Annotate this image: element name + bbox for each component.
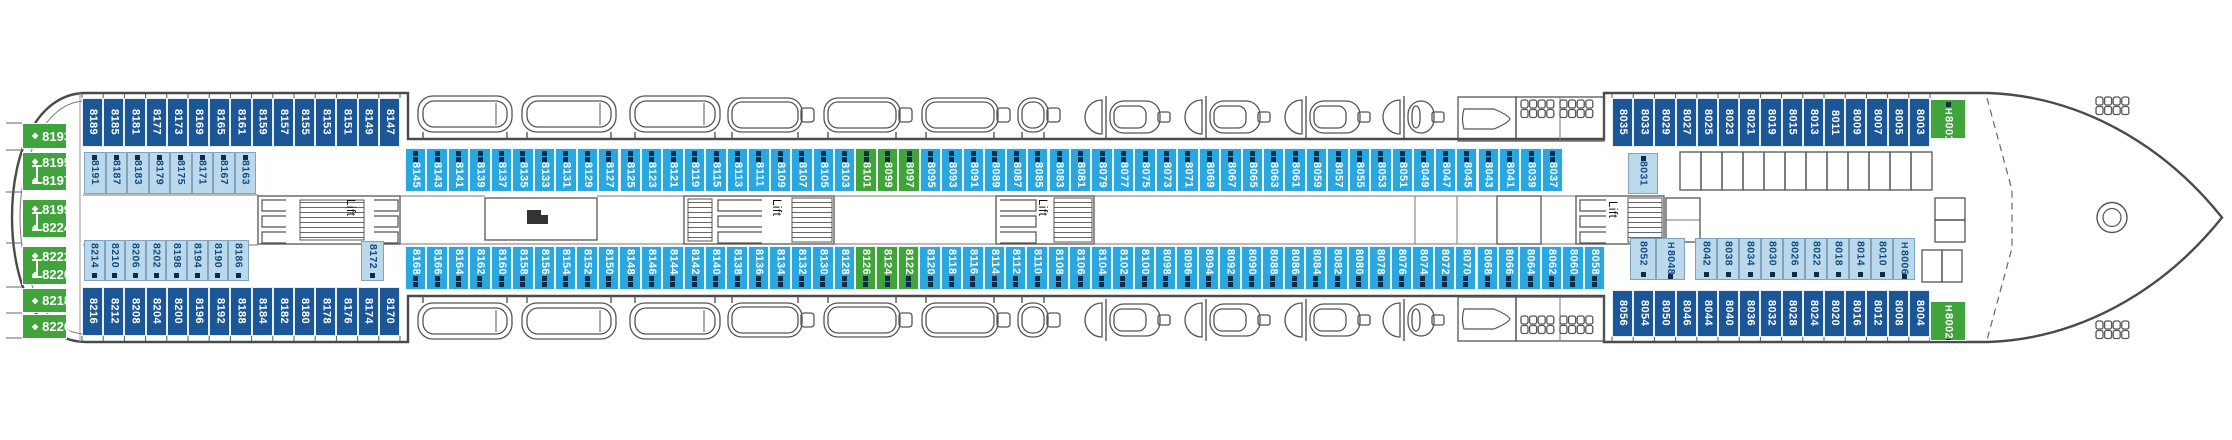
cabin-8004[interactable]: 8004 xyxy=(1909,290,1930,337)
cabin-number: 8002 xyxy=(1943,313,1954,339)
obstructed-view-marker xyxy=(1770,272,1775,277)
cabin-8149[interactable]: 8149 xyxy=(358,98,379,147)
cabin-8187[interactable]: 8187 xyxy=(106,152,128,194)
cabin-8018[interactable]: 8018 xyxy=(1827,238,1849,280)
cabin-8075[interactable]: 8075 xyxy=(1134,148,1155,192)
cabin-8063[interactable]: 8063 xyxy=(1263,148,1284,192)
cabin-8124[interactable]: 8124 xyxy=(876,246,897,290)
cabin-number: 8080 xyxy=(1353,249,1364,275)
cabin-8015[interactable]: 8015 xyxy=(1782,98,1803,147)
cabin-number: 8009 xyxy=(1850,109,1861,135)
obstructed-view-marker xyxy=(692,151,697,162)
cabin-8193[interactable]: ◆8193 xyxy=(23,130,66,143)
cabin-number: 8011 xyxy=(1829,110,1840,135)
cabin-number: 8127 xyxy=(603,162,614,188)
cabin-8190[interactable]: 8190 xyxy=(208,240,229,281)
suite-block[interactable]: ◆8222◆8220 xyxy=(22,246,67,285)
cabin-number: 8046 xyxy=(1681,300,1692,326)
cabin-8164[interactable]: 8164 xyxy=(448,246,469,290)
cabin-8145[interactable]: 8145 xyxy=(405,148,426,192)
cabin-8094[interactable]: 8094 xyxy=(1198,246,1219,290)
cabin-8108[interactable]: 8108 xyxy=(1048,246,1069,290)
cabin-8051[interactable]: 8051 xyxy=(1392,148,1413,192)
cabin-8049[interactable]: 8049 xyxy=(1413,148,1434,192)
cabin-8180[interactable]: 8180 xyxy=(294,287,315,336)
cabin-8152[interactable]: 8152 xyxy=(576,246,597,290)
cabin-8101[interactable]: 8101 xyxy=(855,148,876,192)
cabin-number: 8063 xyxy=(1268,162,1279,188)
cabin-8188[interactable]: 8188 xyxy=(230,287,251,336)
cabin-8091[interactable]: 8091 xyxy=(963,148,984,192)
cabin-8082[interactable]: 8082 xyxy=(1326,246,1347,290)
cabin-8148[interactable]: 8148 xyxy=(619,246,640,290)
suite-block[interactable]: ◆8199◆8224 xyxy=(22,199,67,238)
cabin-8038[interactable]: 8038 xyxy=(1717,238,1739,280)
cabin-number: 8116 xyxy=(967,249,978,274)
cabin-8023[interactable]: 8023 xyxy=(1718,98,1739,147)
cabin-8021[interactable]: 8021 xyxy=(1739,98,1760,147)
cabin-8141[interactable]: 8141 xyxy=(448,148,469,192)
cabin-8110[interactable]: 8110 xyxy=(1026,246,1047,290)
obstructed-view-marker xyxy=(1726,272,1731,277)
obstructed-view-marker xyxy=(1858,272,1863,277)
cabin-8144[interactable]: 8144 xyxy=(662,246,683,290)
cabin-8158[interactable]: 8158 xyxy=(512,246,533,290)
cabin-8040[interactable]: 8040 xyxy=(1718,290,1739,337)
cabin-8140[interactable]: 8140 xyxy=(705,246,726,290)
cabin-number: 8030 xyxy=(1767,241,1778,266)
cabin-8031[interactable]: 8031 xyxy=(1628,153,1658,194)
suite-block[interactable]: ◆8226 xyxy=(22,314,67,339)
cabin-8114[interactable]: 8114 xyxy=(984,246,1005,290)
cabin-8077[interactable]: 8077 xyxy=(1113,148,1134,192)
cabin-8220[interactable]: ◆8220 xyxy=(23,268,66,281)
cabin-8034[interactable]: 8034 xyxy=(1739,238,1761,280)
cabin-8104[interactable]: 8104 xyxy=(1091,246,1112,290)
cabin-8071[interactable]: 8071 xyxy=(1177,148,1198,192)
cabin-number: 8107 xyxy=(796,162,807,188)
cabin-8060[interactable]: 8060 xyxy=(1562,246,1583,290)
cabin-8197[interactable]: ◆8197 xyxy=(23,174,66,187)
cabin-8097[interactable]: 8097 xyxy=(898,148,919,192)
cabin-8171[interactable]: 8171 xyxy=(192,152,214,194)
cabin-8005[interactable]: 8005 xyxy=(1888,98,1909,147)
cabin-8022[interactable]: 8022 xyxy=(1805,238,1827,280)
cabin-8200[interactable]: 8200 xyxy=(167,287,188,336)
cabin-number: 8067 xyxy=(1225,162,1236,188)
cabin-number: 8084 xyxy=(1310,249,1321,275)
cabin-number: 8056 xyxy=(1617,300,1628,326)
obstructed-view-marker xyxy=(799,151,804,162)
cabin-8202[interactable]: 8202 xyxy=(146,240,167,281)
cabin-8037[interactable]: 8037 xyxy=(1542,148,1563,192)
obstructed-view-marker xyxy=(1420,276,1425,287)
cabin-number: 8177 xyxy=(151,109,162,135)
cabin-8047[interactable]: 8047 xyxy=(1435,148,1456,192)
cabin-number: 8012 xyxy=(1871,300,1882,326)
cabin-8179[interactable]: 8179 xyxy=(149,152,171,194)
cabin-number: 8216 xyxy=(87,298,98,324)
suite-block[interactable]: ◆8193 xyxy=(22,123,67,149)
cabin-number: 8085 xyxy=(1032,162,1043,188)
cabin-8058[interactable]: 8058 xyxy=(1584,246,1605,290)
cabin-8042[interactable]: 8042 xyxy=(1695,238,1717,280)
obstructed-view-marker xyxy=(1228,276,1233,287)
cabin-8048[interactable]: H8048 xyxy=(1656,238,1685,280)
cabin-8013[interactable]: 8013 xyxy=(1803,98,1824,147)
obstructed-view-marker xyxy=(542,276,547,287)
cabin-number: 8057 xyxy=(1333,162,1344,188)
obstructed-view-marker xyxy=(1099,276,1104,287)
cabin-8159[interactable]: 8159 xyxy=(252,98,273,147)
cabin-8162[interactable]: 8162 xyxy=(469,246,490,290)
cabin-8098[interactable]: 8098 xyxy=(1155,246,1176,290)
cabin-8105[interactable]: 8105 xyxy=(813,148,834,192)
cabin-8119[interactable]: 8119 xyxy=(684,148,705,192)
cabin-8186[interactable]: 8186 xyxy=(228,240,249,281)
cabin-number: 8102 xyxy=(1117,249,1128,275)
cabin-number: 8123 xyxy=(646,162,657,188)
cabin-8139[interactable]: 8139 xyxy=(469,148,490,192)
cabin-8116[interactable]: 8116 xyxy=(962,246,983,290)
cabin-number: 8049 xyxy=(1418,162,1429,188)
obstructed-view-marker xyxy=(885,276,890,287)
cabin-number: 8226 xyxy=(42,320,71,333)
cabin-8061[interactable]: 8061 xyxy=(1284,148,1305,192)
cabin-8212[interactable]: 8212 xyxy=(103,287,124,336)
cabin-8126[interactable]: 8126 xyxy=(855,246,876,290)
cabin-8039[interactable]: 8039 xyxy=(1520,148,1541,192)
cabin-8078[interactable]: 8078 xyxy=(1369,246,1390,290)
cabin-8087[interactable]: 8087 xyxy=(1006,148,1027,192)
cabin-8057[interactable]: 8057 xyxy=(1327,148,1348,192)
cabin-8222[interactable]: ◆8222 xyxy=(23,250,66,263)
cabin-8043[interactable]: 8043 xyxy=(1478,148,1499,192)
cabin-8122[interactable]: 8122 xyxy=(898,246,919,290)
lift-label: Lift xyxy=(1606,201,1618,218)
cabin-8001[interactable]: H8001 xyxy=(1930,99,1966,139)
cabin-8079[interactable]: 8079 xyxy=(1091,148,1112,192)
cabin-8059[interactable]: 8059 xyxy=(1306,148,1327,192)
cabin-8011[interactable]: 8011 xyxy=(1824,98,1845,147)
cabin-8086[interactable]: 8086 xyxy=(1284,246,1305,290)
cabin-8118[interactable]: 8118 xyxy=(941,246,962,290)
cabin-8198[interactable]: 8198 xyxy=(166,240,187,281)
cabin-8199[interactable]: ◆8199 xyxy=(23,203,66,216)
cabin-8185[interactable]: 8185 xyxy=(103,98,124,147)
cabin-8067[interactable]: 8067 xyxy=(1220,148,1241,192)
cabin-number: 8122 xyxy=(903,249,914,275)
obstructed-view-marker xyxy=(1592,276,1597,287)
cabin-8184[interactable]: 8184 xyxy=(252,287,273,336)
cabin-8068[interactable]: 8068 xyxy=(1477,246,1498,290)
cabin-8130[interactable]: 8130 xyxy=(812,246,833,290)
obstructed-view-marker xyxy=(1185,276,1190,287)
cabin-8172[interactable]: 8172 xyxy=(361,241,384,281)
cabin-8050[interactable]: 8050 xyxy=(1654,290,1675,337)
cabin-8174[interactable]: 8174 xyxy=(358,287,379,336)
cabin-number: 8022 xyxy=(1811,241,1822,266)
cabin-number: 8160 xyxy=(496,249,507,275)
cabin-8002[interactable]: H8002 xyxy=(1930,301,1966,341)
cabin-number: 8035 xyxy=(1617,109,1628,135)
cabin-8014[interactable]: 8014 xyxy=(1849,238,1871,280)
cabin-8165[interactable]: 8165 xyxy=(209,98,230,147)
cabin-number: 8196 xyxy=(193,298,204,324)
cabin-8030[interactable]: 8030 xyxy=(1761,238,1783,280)
cabin-8088[interactable]: 8088 xyxy=(1262,246,1283,290)
cabin-number: 8027 xyxy=(1681,109,1692,135)
cabin-8076[interactable]: 8076 xyxy=(1391,246,1412,290)
cabin-8032[interactable]: 8032 xyxy=(1760,290,1781,337)
cabin-8183[interactable]: 8183 xyxy=(127,152,149,194)
cabin-8226[interactable]: ◆8226 xyxy=(23,320,66,333)
cabin-8204[interactable]: 8204 xyxy=(146,287,167,336)
cabin-number: 8043 xyxy=(1483,162,1494,188)
cabin-number: 8210 xyxy=(110,243,121,268)
cabin-number: 8052 xyxy=(1638,241,1649,266)
cabin-8191[interactable]: 8191 xyxy=(84,152,106,194)
cabin-8153[interactable]: 8153 xyxy=(315,98,336,147)
cabin-8196[interactable]: 8196 xyxy=(188,287,209,336)
handicap-mark: H xyxy=(1944,305,1953,312)
obstructed-view-marker xyxy=(1206,276,1211,287)
cabin-8176[interactable]: 8176 xyxy=(336,287,357,336)
obstructed-view-marker xyxy=(670,276,675,287)
cabin-number: 8199 xyxy=(42,203,71,216)
cabin-8151[interactable]: 8151 xyxy=(336,98,357,147)
cabin-8218[interactable]: ◆8218 xyxy=(23,294,66,307)
obstructed-view-marker xyxy=(1836,272,1841,277)
cabin-8081[interactable]: 8081 xyxy=(1070,148,1091,192)
cabin-number: 8195 xyxy=(42,156,71,169)
cabin-8084[interactable]: 8084 xyxy=(1305,246,1326,290)
cabin-8069[interactable]: 8069 xyxy=(1199,148,1220,192)
cabin-number: 8146 xyxy=(646,249,657,275)
cabin-number: 8152 xyxy=(582,249,593,275)
cabin-8111[interactable]: 8111 xyxy=(748,148,769,192)
cabin-8173[interactable]: 8173 xyxy=(167,98,188,147)
cabin-8045[interactable]: 8045 xyxy=(1456,148,1477,192)
cabin-8136[interactable]: 8136 xyxy=(748,246,769,290)
cabin-8046[interactable]: 8046 xyxy=(1676,290,1697,337)
cabin-number: 8191 xyxy=(90,160,101,185)
cabin-8127[interactable]: 8127 xyxy=(598,148,619,192)
cabin-8092[interactable]: 8092 xyxy=(1219,246,1240,290)
cabin-8214[interactable]: 8214 xyxy=(84,240,105,281)
cabin-8137[interactable]: 8137 xyxy=(491,148,512,192)
cabin-8112[interactable]: 8112 xyxy=(1005,246,1026,290)
cabin-8155[interactable]: 8155 xyxy=(294,98,315,147)
cabin-8121[interactable]: 8121 xyxy=(662,148,683,192)
cabin-number: 8082 xyxy=(1332,249,1343,275)
cabin-number: 8218 xyxy=(42,294,71,307)
cabin-8100[interactable]: 8100 xyxy=(1134,246,1155,290)
cabin-8010[interactable]: 8010 xyxy=(1871,238,1893,280)
cabin-8115[interactable]: 8115 xyxy=(705,148,726,192)
obstructed-view-marker xyxy=(1035,151,1040,162)
cabin-8150[interactable]: 8150 xyxy=(598,246,619,290)
cabin-number: 8038 xyxy=(1723,241,1734,266)
cabin-number: 8193 xyxy=(42,130,71,143)
cabin-8107[interactable]: 8107 xyxy=(791,148,812,192)
cabin-number: 8051 xyxy=(1397,162,1408,188)
cabin-8138[interactable]: 8138 xyxy=(726,246,747,290)
cabin-8175[interactable]: 8175 xyxy=(170,152,192,194)
cabin-8041[interactable]: 8041 xyxy=(1499,148,1520,192)
cabin-8099[interactable]: 8099 xyxy=(877,148,898,192)
cabin-8026[interactable]: 8026 xyxy=(1783,238,1805,280)
cabin-8154[interactable]: 8154 xyxy=(555,246,576,290)
cabin-8169[interactable]: 8169 xyxy=(188,98,209,147)
cabin-8146[interactable]: 8146 xyxy=(641,246,662,290)
cabin-8163[interactable]: 8163 xyxy=(235,152,257,194)
cabin-8025[interactable]: 8025 xyxy=(1697,98,1718,147)
cabin-8192[interactable]: 8192 xyxy=(209,287,230,336)
cabin-8053[interactable]: 8053 xyxy=(1370,148,1391,192)
cabin-8135[interactable]: 8135 xyxy=(512,148,533,192)
suite-block[interactable]: ◆8195◆8197 xyxy=(22,152,67,191)
cabin-number: 8060 xyxy=(1567,249,1578,275)
cabin-8194[interactable]: 8194 xyxy=(187,240,208,281)
cabin-8208[interactable]: 8208 xyxy=(124,287,145,336)
cabin-number: 8077 xyxy=(1118,162,1129,188)
cabin-8044[interactable]: 8044 xyxy=(1697,290,1718,337)
cabin-number: 8202 xyxy=(151,243,162,268)
cabin-8020[interactable]: 8020 xyxy=(1824,290,1845,337)
cabin-8160[interactable]: 8160 xyxy=(491,246,512,290)
cabin-8113[interactable]: 8113 xyxy=(727,148,748,192)
cabin-8024[interactable]: 8024 xyxy=(1803,290,1824,337)
cabin-number: 8019 xyxy=(1765,109,1776,135)
cabin-number: 8039 xyxy=(1526,162,1537,188)
cabin-8036[interactable]: 8036 xyxy=(1739,290,1760,337)
obstructed-view-marker xyxy=(1143,151,1148,162)
cabin-8129[interactable]: 8129 xyxy=(577,148,598,192)
cabin-8066[interactable]: 8066 xyxy=(1498,246,1519,290)
cabin-8195[interactable]: ◆8195 xyxy=(23,156,66,169)
cabin-8009[interactable]: 8009 xyxy=(1845,98,1866,147)
cabin-8132[interactable]: 8132 xyxy=(791,246,812,290)
cabin-8170[interactable]: 8170 xyxy=(379,287,400,336)
cabin-8210[interactable]: 8210 xyxy=(105,240,126,281)
cabin-8062[interactable]: 8062 xyxy=(1541,246,1562,290)
cabin-number: 8003 xyxy=(1914,109,1925,135)
cabin-8096[interactable]: 8096 xyxy=(1176,246,1197,290)
cabin-8016[interactable]: 8016 xyxy=(1845,290,1866,337)
cabin-8072[interactable]: 8072 xyxy=(1434,246,1455,290)
obstructed-view-marker xyxy=(606,276,611,287)
cabin-8178[interactable]: 8178 xyxy=(315,287,336,336)
cabin-8125[interactable]: 8125 xyxy=(620,148,641,192)
cabin-8052[interactable]: 8052 xyxy=(1630,238,1656,280)
cabin-8064[interactable]: 8064 xyxy=(1519,246,1540,290)
cabin-8019[interactable]: 8019 xyxy=(1760,98,1781,147)
cabin-8073[interactable]: 8073 xyxy=(1156,148,1177,192)
cabin-8177[interactable]: 8177 xyxy=(146,98,167,147)
cabin-number: 8206 xyxy=(130,243,141,268)
cabin-number: 8185 xyxy=(108,109,119,135)
cabin-8109[interactable]: 8109 xyxy=(770,148,791,192)
cabin-8083[interactable]: 8083 xyxy=(1049,148,1070,192)
cabin-8147[interactable]: 8147 xyxy=(379,98,400,147)
cabin-8161[interactable]: 8161 xyxy=(230,98,251,147)
cabin-8189[interactable]: 8189 xyxy=(82,98,103,147)
cabin-8128[interactable]: 8128 xyxy=(834,246,855,290)
obstructed-view-marker xyxy=(1506,276,1511,287)
cabin-8006[interactable]: H8006 xyxy=(1893,238,1915,280)
cabin-8182[interactable]: 8182 xyxy=(273,287,294,336)
cabin-number: 8142 xyxy=(689,249,700,275)
cabin-8028[interactable]: 8028 xyxy=(1782,290,1803,337)
cabin-8090[interactable]: 8090 xyxy=(1241,246,1262,290)
cabin-8142[interactable]: 8142 xyxy=(684,246,705,290)
cabin-8095[interactable]: 8095 xyxy=(920,148,941,192)
obstructed-view-marker xyxy=(1228,151,1233,162)
cabin-8089[interactable]: 8089 xyxy=(984,148,1005,192)
cabin-8074[interactable]: 8074 xyxy=(1412,246,1433,290)
cabin-8206[interactable]: 8206 xyxy=(125,240,146,281)
cabin-8093[interactable]: 8093 xyxy=(941,148,962,192)
cabin-8007[interactable]: 8007 xyxy=(1866,98,1887,147)
cabin-8167[interactable]: 8167 xyxy=(213,152,235,194)
cabin-number: 8165 xyxy=(214,109,225,135)
cabin-8131[interactable]: 8131 xyxy=(555,148,576,192)
suite-block[interactable]: ◆8218 xyxy=(22,288,67,313)
cabin-8029[interactable]: 8029 xyxy=(1654,98,1675,147)
cabin-8080[interactable]: 8080 xyxy=(1348,246,1369,290)
cabin-8070[interactable]: 8070 xyxy=(1455,246,1476,290)
cabin-8103[interactable]: 8103 xyxy=(834,148,855,192)
cabin-8156[interactable]: 8156 xyxy=(534,246,555,290)
cabin-number: 8204 xyxy=(151,298,162,324)
cabin-8123[interactable]: 8123 xyxy=(641,148,662,192)
cabin-8054[interactable]: 8054 xyxy=(1633,290,1654,337)
cabin-number: 8033 xyxy=(1638,109,1649,135)
cabin-8027[interactable]: 8027 xyxy=(1676,98,1697,147)
cabin-8065[interactable]: 8065 xyxy=(1242,148,1263,192)
cabin-8055[interactable]: 8055 xyxy=(1349,148,1370,192)
cabin-8003[interactable]: 8003 xyxy=(1909,98,1930,147)
cabin-8143[interactable]: 8143 xyxy=(426,148,447,192)
cabin-8102[interactable]: 8102 xyxy=(1112,246,1133,290)
cabin-8035[interactable]: 8035 xyxy=(1612,98,1633,147)
cabin-8056[interactable]: 8056 xyxy=(1612,290,1633,337)
cabin-number: 8175 xyxy=(176,160,187,185)
cabin-8033[interactable]: 8033 xyxy=(1633,98,1654,147)
cabin-8181[interactable]: 8181 xyxy=(124,98,145,147)
cabin-8166[interactable]: 8166 xyxy=(426,246,447,290)
cabin-8106[interactable]: 8106 xyxy=(1069,246,1090,290)
cabin-8134[interactable]: 8134 xyxy=(769,246,790,290)
cabin-number: 8157 xyxy=(278,109,289,135)
obstructed-view-marker xyxy=(1164,151,1169,162)
cabin-number: 8169 xyxy=(193,109,204,135)
cabin-number: 8134 xyxy=(775,249,786,275)
cabin-8133[interactable]: 8133 xyxy=(534,148,555,192)
cabin-8008[interactable]: 8008 xyxy=(1888,290,1909,337)
cabin-number: 8190 xyxy=(213,243,224,268)
cabin-8120[interactable]: 8120 xyxy=(919,246,940,290)
cabin-8085[interactable]: 8085 xyxy=(1027,148,1048,192)
cabin-8216[interactable]: 8216 xyxy=(82,287,103,336)
cabin-8157[interactable]: 8157 xyxy=(273,98,294,147)
cabin-8012[interactable]: 8012 xyxy=(1866,290,1887,337)
cabins-layer: 8189818581818177817381698165816181598157… xyxy=(0,0,2232,440)
cabin-8168[interactable]: 8168 xyxy=(405,246,426,290)
cabin-8224[interactable]: ◆8224 xyxy=(23,221,66,234)
cabin-number: 8147 xyxy=(384,109,395,135)
